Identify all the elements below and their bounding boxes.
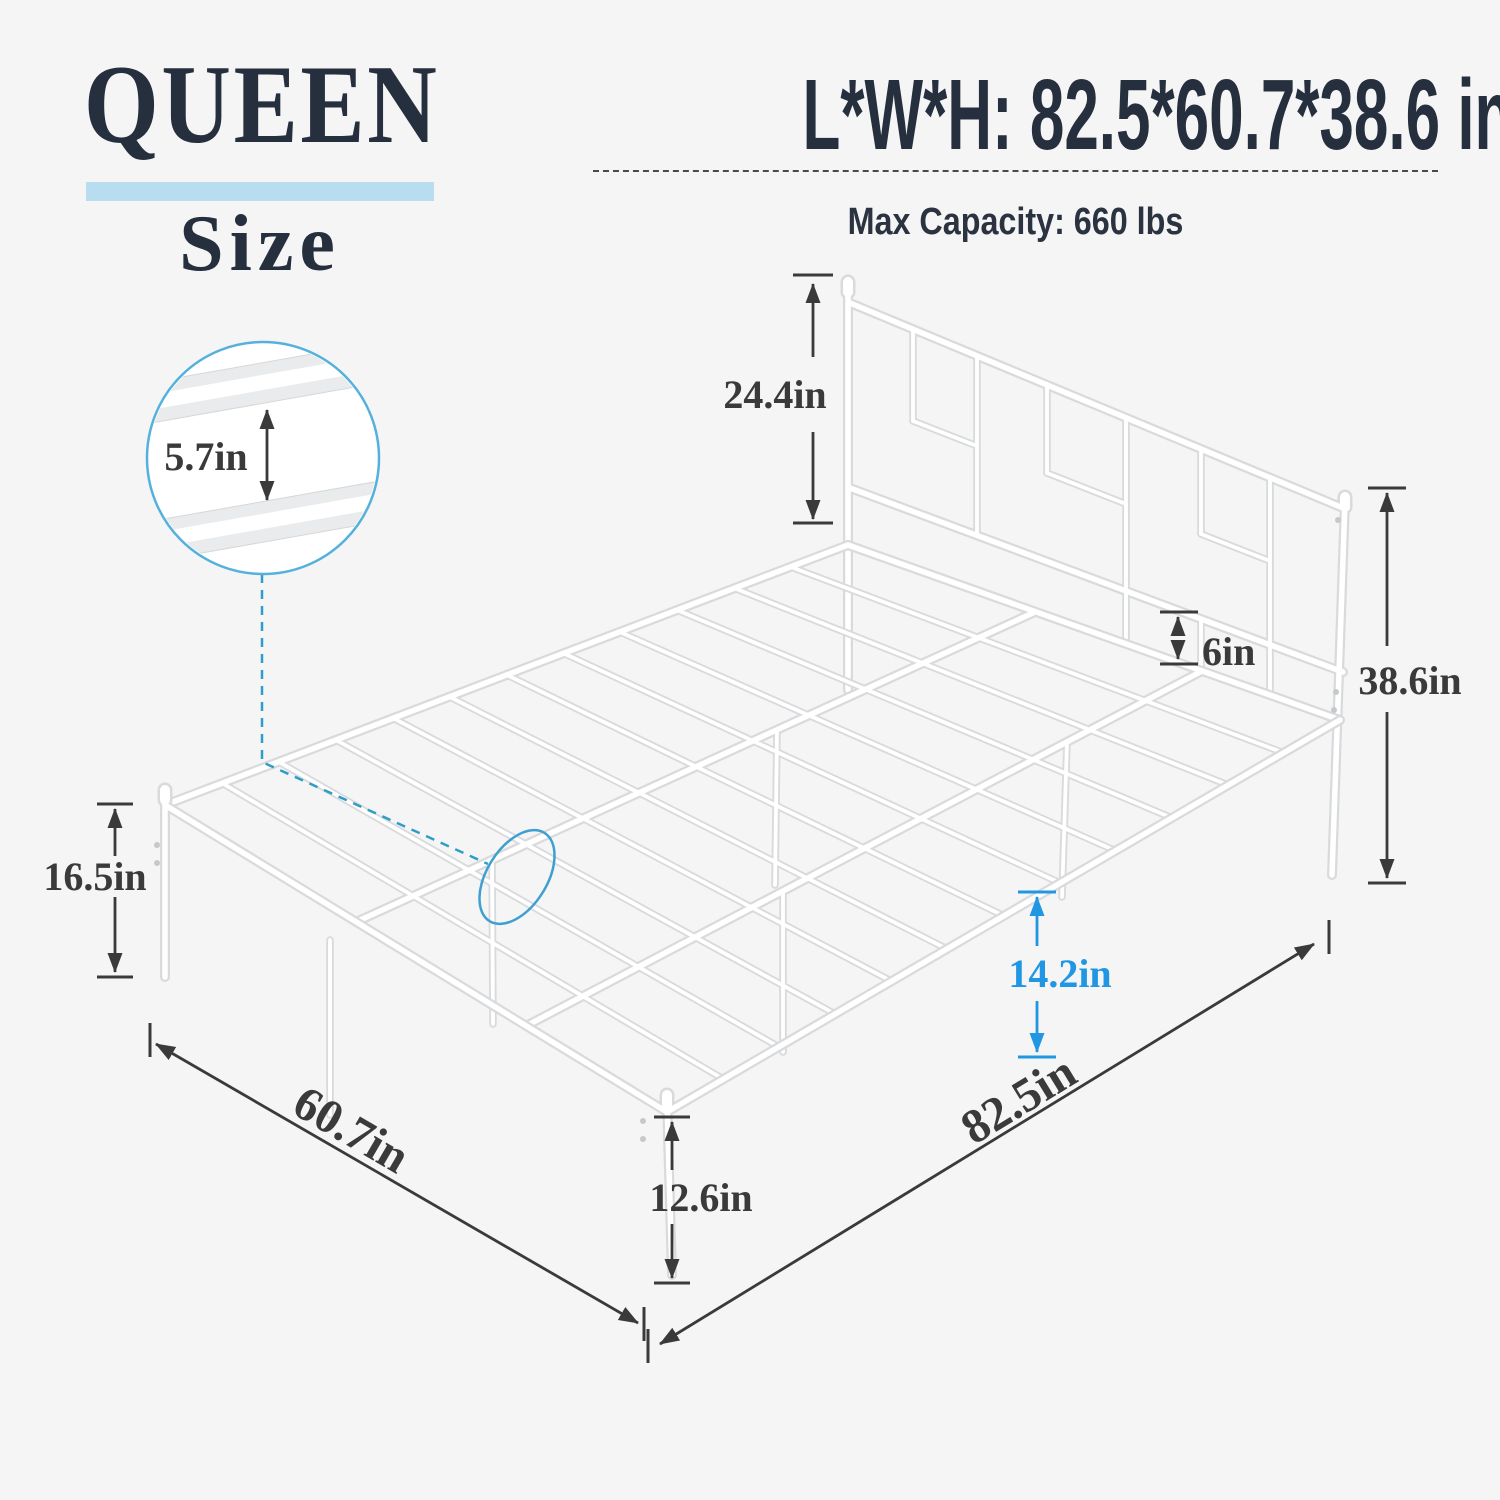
bed-width-label: 60.7in: [284, 1076, 418, 1184]
slat-zoom-callout: 5.7in: [107, 336, 424, 574]
slat-gap-label: 5.7in: [164, 434, 247, 479]
clearance-dimension: 14.2in: [1008, 892, 1111, 1057]
bed-frame-illustration: 5.7in 24.4in 6in 38.6in: [0, 0, 1500, 1500]
slat-platform: [165, 545, 1340, 1115]
bed-length-label: 82.5in: [952, 1045, 1085, 1155]
frame-height-label: 16.5in: [43, 854, 146, 899]
frame-height-dimension: 16.5in: [43, 804, 146, 977]
bed-width-dimension: 60.7in: [150, 1023, 644, 1341]
rail-gap-label: 6in: [1202, 629, 1255, 674]
bed-length-dimension: 82.5in: [648, 920, 1329, 1363]
leg-height-label: 12.6in: [649, 1175, 752, 1220]
headboard-height-dimension: 24.4in: [723, 275, 833, 523]
product-dimension-diagram: QUEEN Size L*W*H: 82.5*60.7*38.6 in Max …: [0, 0, 1500, 1500]
total-height-dimension: 38.6in: [1358, 488, 1461, 883]
total-height-label: 38.6in: [1358, 658, 1461, 703]
clearance-label: 14.2in: [1008, 951, 1111, 996]
headboard-height-label: 24.4in: [723, 372, 826, 417]
